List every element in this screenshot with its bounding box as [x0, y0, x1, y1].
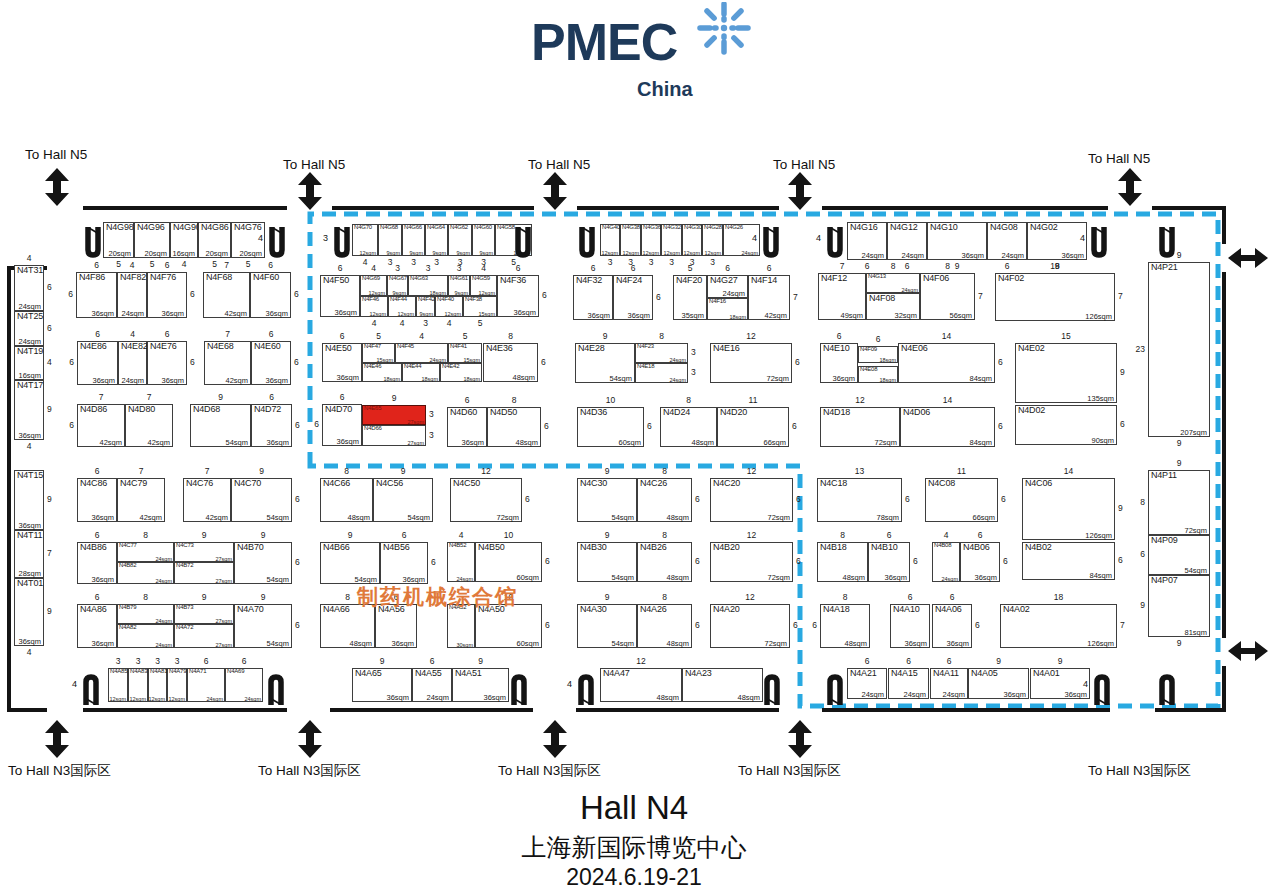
- venue-name: 上海新国际博览中心: [0, 831, 1268, 864]
- dimension-label: 6: [847, 656, 887, 666]
- booth-area: 24sqm: [942, 690, 965, 699]
- booth-area: 48sqm: [666, 573, 689, 582]
- booth-N4F41: N4F4115sqm: [448, 343, 482, 363]
- booth-N4B08: N4B0824sqm: [932, 542, 960, 582]
- dimension-label: 4: [118, 329, 147, 339]
- booth-N4G12: N4G1224sqm: [887, 222, 927, 260]
- booth-N4D66: N4D6627sqm: [362, 425, 426, 446]
- booth-N4G10: N4G1036sqm: [927, 222, 987, 260]
- booth-area: 20sqm: [205, 249, 228, 258]
- booth-id: N4C77: [119, 542, 137, 548]
- booth-N4G40: N4G4012sqm: [600, 224, 620, 256]
- booth-area: 20sqm: [144, 249, 167, 258]
- booth-id: N4F44: [390, 296, 407, 302]
- booth-area: 72sqm: [766, 374, 789, 383]
- booth-N4A79: N4A7912sqm: [167, 668, 187, 702]
- booth-N4A26: N4A2648sqm: [637, 604, 692, 648]
- booth-id: N4A69: [227, 668, 244, 674]
- dimension-label: 11: [717, 395, 789, 405]
- dimension-label: 6: [77, 329, 118, 339]
- dimension-label: 6: [295, 494, 300, 504]
- wall-segment: [7, 266, 11, 712]
- booth-area: 42sqm: [225, 376, 248, 385]
- dimension-label: 8: [637, 592, 692, 602]
- booth-id: N4A01: [1033, 668, 1060, 678]
- booth-id: N4F68: [206, 272, 232, 282]
- dimension-label: 3: [108, 656, 128, 666]
- booth-id: N4F86: [79, 272, 105, 282]
- booth-N4B82: N4B8224sqm: [117, 562, 174, 584]
- dimension-label: 8: [866, 261, 920, 271]
- booth-id: N4T11: [17, 530, 42, 540]
- booth-area: 84sqm: [1089, 571, 1112, 580]
- booth-area: 36sqm: [92, 376, 115, 385]
- booth-area: 54sqm: [266, 513, 289, 522]
- dimension-label: 4: [360, 318, 388, 328]
- dimension-label: 7: [1118, 291, 1123, 301]
- dimension-label: 12: [600, 656, 682, 666]
- booth-N4A20: N4A2072sqm: [710, 604, 790, 648]
- booth-id: N4G63: [410, 275, 428, 281]
- booth-area: 24sqm: [121, 309, 144, 318]
- booth-id: N4G61: [450, 275, 468, 281]
- booth-N4E86: N4E8636sqm: [77, 341, 118, 385]
- hall-zone-label: 制药机械综合馆: [357, 583, 518, 611]
- booth-N4T17: N4T1736sqm: [14, 380, 44, 440]
- dimension-label: 6: [305, 419, 319, 429]
- booth-area: 36sqm: [483, 693, 506, 702]
- booth-N4D68: N4D6854sqm: [190, 404, 251, 447]
- dashed-boundary: [0, 0, 1268, 895]
- booth-id: N4C50: [453, 478, 480, 488]
- booth-N4B10: N4B1036sqm: [868, 542, 910, 582]
- booth-id: N4A30: [580, 604, 607, 614]
- booth-id: N4B20: [713, 542, 740, 552]
- door-icon: [84, 224, 102, 262]
- double-arrow-vertical-icon: [787, 720, 813, 762]
- booth-area: 16sqm: [18, 371, 41, 380]
- booth-id: N4G12: [890, 222, 918, 232]
- booth-area: 18sqm: [421, 376, 438, 382]
- dimension-label: 7: [793, 292, 798, 302]
- dimension-label: 3: [148, 656, 167, 666]
- wall-segment: [332, 206, 534, 210]
- booth-N4A86: N4A8636sqm: [77, 604, 117, 648]
- dimension-label: 6: [147, 329, 187, 339]
- dimension-label: 9: [47, 606, 52, 616]
- booth-area: 135sqm: [1087, 394, 1114, 403]
- booth-N4C18: N4C1878sqm: [817, 478, 902, 522]
- booth-area: 126sqm: [1085, 531, 1112, 540]
- booth-N4F82: N4F8224sqm: [117, 272, 147, 318]
- starburst-icon: [695, 2, 759, 66]
- booth-N4T31: N4T3124sqm: [14, 265, 44, 311]
- booth-id: N4A05: [971, 668, 998, 678]
- booth-area: 72sqm: [767, 573, 790, 582]
- booth-id: N4D70: [325, 404, 352, 414]
- booth-id: N4D80: [128, 404, 155, 414]
- dimension-label: 12: [710, 592, 790, 602]
- booth-id: N4D06: [903, 407, 930, 417]
- door-icon: [267, 670, 285, 708]
- booth-area: 12sqm: [683, 250, 700, 256]
- booth-N4A06: N4A0636sqm: [932, 604, 972, 648]
- booth-N4F50: N4F5036sqm: [320, 275, 360, 317]
- booth-id: N4G13: [868, 273, 886, 279]
- booth-area: 81sqm: [1184, 628, 1207, 637]
- booth-N4E02: N4E02135sqm: [1015, 343, 1117, 403]
- booth-N4E76: N4E7636sqm: [147, 341, 187, 385]
- booth-id: N4E44: [404, 363, 421, 369]
- dimension-label: 9: [352, 656, 412, 666]
- booth-id: N4D18: [823, 407, 850, 417]
- dimension-label: 6: [748, 263, 790, 273]
- dimension-label: 8: [483, 331, 538, 341]
- booth-N4A71: N4A7124sqm: [187, 668, 225, 702]
- booth-id: N4B72: [176, 562, 193, 568]
- booth-id: N4F23: [637, 343, 654, 349]
- booth-area: 12sqm: [642, 250, 659, 256]
- booth-area: 42sqm: [147, 438, 170, 447]
- door-icon: [1093, 670, 1111, 708]
- dimension-label: 7: [818, 261, 866, 271]
- booth-id: N4A83: [130, 668, 147, 674]
- booth-area: 36sqm: [91, 309, 114, 318]
- floor-plan: PMEC China N4G9820sqm5N4G9620sqm5N4G: [0, 0, 1268, 895]
- booth-N4G30: N4G3012sqm: [682, 224, 702, 256]
- booth-id: N4B52: [449, 542, 466, 548]
- booth-area: 12sqm: [397, 311, 414, 317]
- booth-id: N4C56: [376, 478, 403, 488]
- booth-N4F09: N4F0918sqm: [858, 346, 898, 363]
- exit-label: To Hall N5: [528, 157, 590, 172]
- booth-N4E16: N4E1672sqm: [710, 343, 792, 383]
- booth-N4D60: N4D6036sqm: [447, 407, 487, 447]
- booth-area: 84sqm: [969, 374, 992, 383]
- booth-id: N4B50: [478, 542, 505, 552]
- dimension-label: 9: [231, 466, 292, 476]
- booth-id: N4C06: [1025, 478, 1052, 488]
- dimension-label: 9: [1148, 438, 1210, 448]
- dimension-label: 6: [998, 421, 1003, 431]
- dimension-label: 6: [888, 656, 929, 666]
- booth-id: N4G16: [850, 222, 878, 232]
- booth-N4G62: N4G629sqm: [448, 224, 472, 256]
- booth-N4C76: N4C7642sqm: [183, 478, 231, 522]
- dimension-label: 6: [322, 331, 362, 341]
- booth-area: 18sqm: [383, 376, 400, 382]
- booth-area: 24sqm: [456, 576, 473, 582]
- booth-area: 24sqm: [861, 251, 884, 260]
- door-icon: [333, 224, 351, 262]
- booth-id: N4E10: [823, 343, 850, 353]
- booth-id: N4F38: [465, 296, 482, 302]
- booth-N4F68: N4F6842sqm: [203, 272, 250, 318]
- dimension-label: 7: [77, 392, 125, 402]
- booth-N4C86: N4C8636sqm: [77, 478, 117, 522]
- booth-N4G16: N4G1624sqm: [847, 222, 887, 260]
- dimension-label: 6: [930, 656, 968, 666]
- booth-id: N4D72: [254, 404, 281, 414]
- booth-area: 54sqm: [611, 639, 634, 648]
- dimension-label: 7: [203, 260, 250, 270]
- booth-N4B26: N4B2648sqm: [637, 542, 692, 582]
- booth-N4C06: N4C06126sqm: [1022, 478, 1115, 540]
- dimension-label: 9: [1120, 367, 1125, 377]
- booth-id: N4T31: [17, 265, 43, 275]
- booth-area: 12sqm: [359, 250, 376, 256]
- dimension-label: 6: [695, 556, 700, 566]
- booth-id: N4D60: [450, 407, 477, 417]
- booth-area: 9sqm: [480, 250, 493, 256]
- exit-label: To Hall N5: [773, 157, 835, 172]
- booth-N4B20: N4B2072sqm: [710, 542, 793, 582]
- booth-N4F38: N4F3815sqm: [463, 296, 497, 317]
- booth-area: 42sqm: [139, 513, 162, 522]
- booth-id: N4G67: [389, 275, 407, 281]
- booth-N4A23: N4A2348sqm: [682, 668, 763, 702]
- booth-id: N4F12: [821, 273, 847, 283]
- double-arrow-vertical-icon: [542, 720, 568, 762]
- door-number: 4: [258, 233, 263, 243]
- booth-N4C08: N4C0866sqm: [925, 478, 998, 522]
- dimension-label: 6: [975, 620, 980, 630]
- dimension-label: 6: [497, 263, 539, 273]
- booth-id: N4G66: [404, 224, 422, 230]
- booth-id: N4T19: [17, 346, 43, 356]
- dimension-label: 9: [968, 656, 1029, 666]
- booth-id: N4G10: [930, 222, 958, 232]
- booth-id: N4A65: [355, 668, 382, 678]
- dimension-label: 6: [320, 263, 360, 273]
- dimension-label: 4: [388, 318, 416, 328]
- dimension-label: 9: [577, 592, 637, 602]
- booth-N4G61: N4G619sqm: [448, 275, 470, 296]
- booth-id: N4G38: [622, 224, 640, 230]
- dimension-label: 6: [793, 620, 798, 630]
- dimension-label: 4: [14, 441, 44, 451]
- booth-area: 36sqm: [161, 376, 184, 385]
- dimension-label: 6: [1003, 556, 1008, 566]
- booth-N4B79: N4B7924sqm: [117, 604, 174, 624]
- booth-N4A47: N4A4748sqm: [600, 668, 682, 702]
- dimension-label: 23: [1131, 344, 1145, 354]
- booth-area: 12sqm: [704, 250, 721, 256]
- booth-area: 18sqm: [879, 357, 896, 363]
- booth-area: 36sqm: [386, 693, 409, 702]
- booth-N4G90: N4G9016sqm: [170, 222, 198, 258]
- dimension-label: 3: [429, 409, 434, 419]
- door-icon: [510, 670, 528, 708]
- booth-id: N4A71: [189, 668, 206, 674]
- booth-area: 27sqm: [407, 440, 424, 446]
- door-icon: [1158, 670, 1176, 708]
- booth-area: 36sqm: [884, 573, 907, 582]
- booth-area: 24sqm: [1001, 251, 1024, 260]
- dimension-label: 8: [660, 395, 717, 405]
- booth-id: N4B73: [176, 604, 193, 610]
- booth-N4G63: N4G6318sqm: [408, 275, 448, 296]
- dimension-label: 3: [429, 430, 434, 440]
- booth-area: 36sqm: [1061, 251, 1084, 260]
- booth-N4G38: N4G3812sqm: [620, 224, 641, 256]
- booth-area: 42sqm: [99, 438, 122, 447]
- booth-area: 28sqm: [18, 569, 41, 578]
- booth-N4A72: N4A7227sqm: [174, 624, 234, 648]
- dimension-label: 8: [637, 466, 692, 476]
- booth-area: 54sqm: [225, 438, 248, 447]
- dimension-label: 9: [373, 466, 433, 476]
- booth-area: 12sqm: [663, 250, 680, 256]
- booth-id: N4T01: [17, 578, 43, 588]
- booth-N4E60: N4E6036sqm: [251, 341, 291, 385]
- dimension-label: 6: [1118, 555, 1123, 565]
- dimension-label: 3: [691, 347, 696, 357]
- booth-area: 12sqm: [369, 311, 386, 317]
- door-icon: [826, 670, 844, 708]
- booth-N4E46: N4E4618sqm: [362, 363, 402, 382]
- booth-N4E68: N4E6842sqm: [204, 341, 251, 385]
- booth-area: 24sqm: [155, 578, 172, 584]
- booth-N4A21: N4A2124sqm: [847, 668, 887, 699]
- dimension-label: 6: [77, 530, 117, 540]
- booth-area: 24sqm: [244, 696, 261, 702]
- booth-area: 66sqm: [972, 513, 995, 522]
- dimension-label: 12: [450, 466, 522, 476]
- logo-text-pmec: PMEC: [531, 16, 677, 68]
- dimension-label: 6: [695, 494, 700, 504]
- dimension-label: 6: [803, 620, 817, 630]
- booth-N4F40: N4F4012sqm: [435, 296, 463, 317]
- booth-id: N4F02: [998, 273, 1024, 283]
- dimension-label: 6: [251, 329, 291, 339]
- dimension-label: 9: [1131, 600, 1145, 610]
- booth-N4F86: N4F8636sqm: [76, 272, 117, 318]
- booth-id: N4D50: [490, 407, 517, 417]
- exit-label: To Hall N3国际区: [738, 762, 841, 780]
- booth-id: N4A85: [110, 668, 127, 674]
- booth-id: N4G68: [380, 224, 398, 230]
- booth-N4P11: N4P1172sqm: [1148, 470, 1210, 535]
- booth-id: N4D24: [663, 407, 690, 417]
- wall-segment: [1222, 206, 1226, 244]
- exit-label: To Hall N3国际区: [1088, 762, 1191, 780]
- booth-id: N4A66: [323, 604, 350, 614]
- booth-area: 12sqm: [601, 250, 618, 256]
- booth-N4A05: N4A0536sqm: [968, 668, 1029, 699]
- dimension-label: 6: [47, 282, 52, 292]
- dimension-label: 6: [545, 556, 550, 566]
- booth-N4D80: N4D8042sqm: [125, 404, 173, 447]
- dimension-label: 6: [60, 420, 74, 430]
- booth-area: 207sqm: [1180, 428, 1207, 437]
- booth-N4D72: N4D7236sqm: [251, 404, 292, 447]
- booth-N4A30: N4A3054sqm: [577, 604, 637, 648]
- dimension-label: 8: [637, 530, 692, 540]
- booth-id: N4F32: [576, 275, 602, 285]
- dimension-label: 6: [447, 395, 487, 405]
- booth-area: 27sqm: [215, 642, 232, 648]
- booth-id: N4T15: [17, 470, 43, 480]
- wall-segment: [330, 708, 533, 712]
- booth-id: N4F42: [418, 296, 435, 302]
- booth-area: 48sqm: [737, 693, 760, 702]
- booth-N4B66: N4B6654sqm: [320, 542, 380, 584]
- dimension-label: 6: [868, 530, 910, 540]
- booth-N4D36: N4D3660sqm: [577, 407, 644, 447]
- booth-area: 78sqm: [876, 513, 899, 522]
- booth-area: 42sqm: [764, 311, 787, 320]
- booth-N4F46: N4F4612sqm: [360, 296, 388, 317]
- booth-area: 9sqm: [420, 311, 433, 317]
- booth-N4B56: N4B5636sqm: [380, 542, 428, 584]
- booth-N4F12: N4F1249sqm: [818, 273, 866, 320]
- door-icon: [826, 224, 844, 262]
- booth-area: 48sqm: [666, 639, 689, 648]
- wall-segment: [1222, 666, 1226, 712]
- booth-N4G98: N4G9820sqm: [103, 222, 134, 258]
- booth-N4A10: N4A1036sqm: [890, 604, 930, 648]
- booth-area: 32sqm: [894, 311, 917, 320]
- dimension-label: 6: [1001, 494, 1006, 504]
- booth-N4G69: N4G6912sqm: [360, 275, 387, 296]
- booth-id: N4P21: [1151, 262, 1178, 272]
- booth-area: 24sqm: [741, 250, 758, 256]
- dimension-label: 18: [1000, 592, 1117, 602]
- booth-id: N4E65: [364, 405, 381, 411]
- booth-id: N4B30: [580, 542, 607, 552]
- booth-id: N4G32: [663, 224, 681, 230]
- dimension-label: 8: [817, 530, 868, 540]
- booth-id: N4G96: [137, 222, 165, 232]
- booth-N4F16: N4F1618sqm: [707, 298, 748, 320]
- booth-id: N4E68: [207, 341, 234, 351]
- booth-id: N4G02: [1030, 222, 1058, 232]
- booth-N4G68: N4G689sqm: [378, 224, 402, 256]
- booth-N4A15: N4A1524sqm: [888, 668, 929, 699]
- booth-area: 18sqm: [463, 376, 480, 382]
- booth-id: N4D66: [364, 425, 382, 431]
- booth-id: N4C08: [928, 478, 955, 488]
- dimension-label: 6: [59, 289, 73, 299]
- dimension-label: 8: [487, 395, 541, 405]
- booth-area: 72sqm: [496, 513, 519, 522]
- booth-N4E10: N4E1036sqm: [820, 343, 858, 383]
- booth-area: 20sqm: [239, 249, 262, 258]
- dimension-label: 18: [995, 261, 1115, 271]
- dimension-label: 6: [998, 357, 1003, 367]
- dimension-label: 6: [613, 263, 653, 273]
- dimension-label: 6: [695, 620, 700, 630]
- dimension-label: 14: [898, 331, 995, 341]
- booth-id: N4F45: [397, 343, 414, 349]
- booth-N4G86: N4G8620sqm: [198, 222, 231, 258]
- dimension-label: 6: [932, 592, 972, 602]
- booth-area: 90sqm: [1091, 436, 1114, 445]
- dimension-label: 6: [795, 357, 800, 367]
- dimension-label: 3: [448, 263, 470, 273]
- dimension-label: 8: [117, 530, 174, 540]
- booth-N4C66: N4C6648sqm: [320, 478, 373, 522]
- booth-N4P09: N4P0954sqm: [1148, 535, 1210, 575]
- dimension-label: 15: [1015, 331, 1117, 341]
- booth-id: N4F14: [751, 275, 777, 285]
- wall-segment: [576, 708, 779, 712]
- booth-id: N4E08: [860, 366, 877, 372]
- wall-segment: [577, 206, 779, 210]
- booth-N4C50: N4C5072sqm: [450, 478, 522, 522]
- dimension-label: 6: [60, 357, 74, 367]
